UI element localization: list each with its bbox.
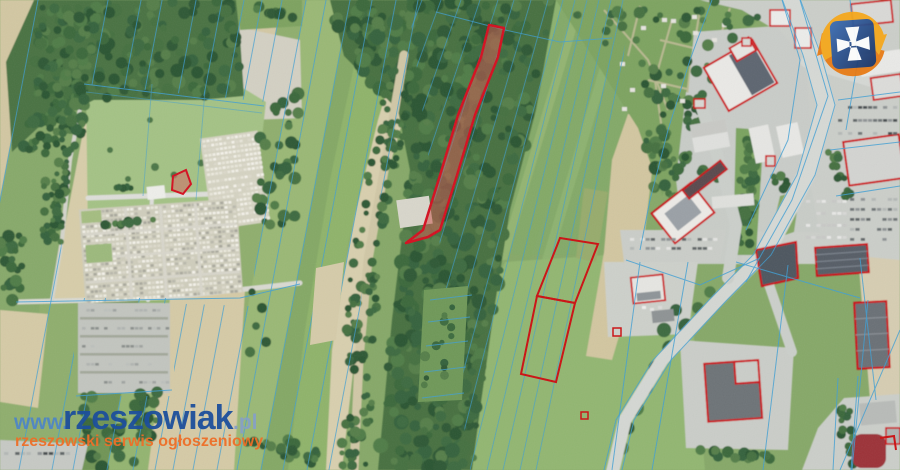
svg-text:rzeszowiak: rzeszowiak <box>63 399 234 437</box>
svg-text:rzeszowski serwis ogłoszeniowy: rzeszowski serwis ogłoszeniowy <box>15 433 263 450</box>
svg-text:.pl: .pl <box>233 411 258 434</box>
svg-text:www.: www. <box>13 411 68 434</box>
